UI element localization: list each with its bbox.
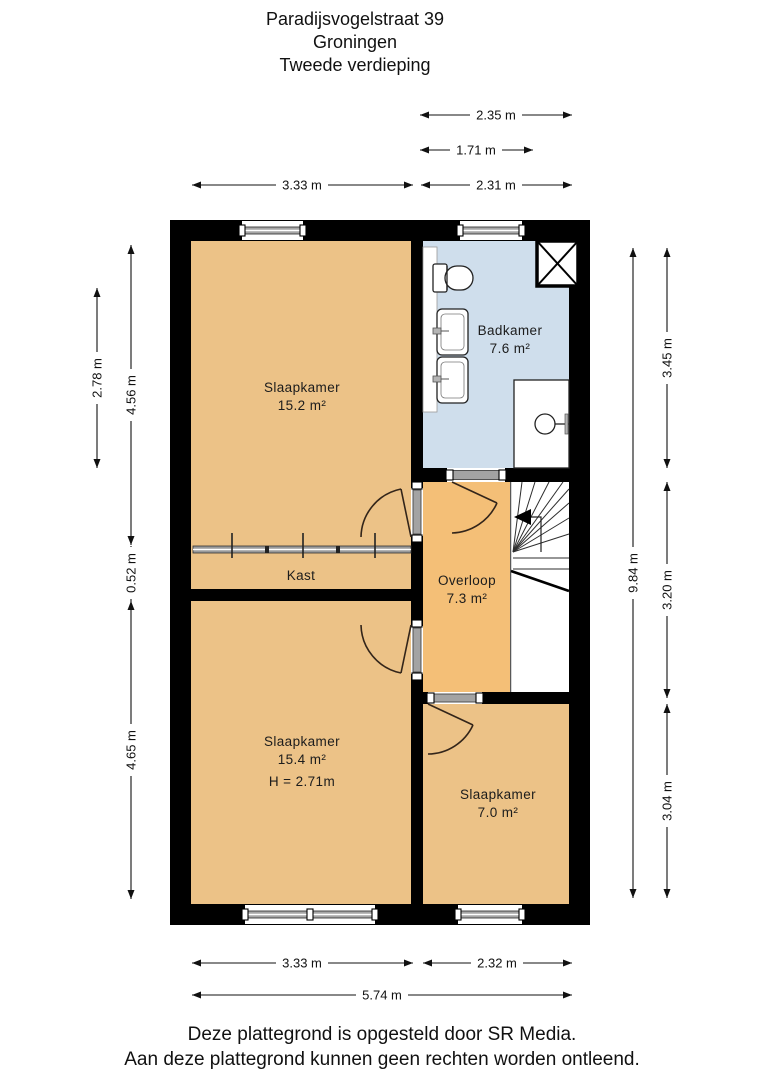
dim-right-345: 3.45 m xyxy=(659,248,675,468)
disclaimer: Deze plattegrond is opgesteld door SR Me… xyxy=(124,1022,640,1072)
label-bathroom-name: Badkamer xyxy=(478,323,543,338)
svg-text:3.20 m: 3.20 m xyxy=(660,570,675,610)
dim-right-984: 9.84 m xyxy=(625,248,641,898)
wall-bottom xyxy=(170,904,590,925)
floorplan-page: Paradijsvogelstraat 39 Groningen Tweede … xyxy=(0,0,764,1080)
wall-top xyxy=(170,220,590,241)
window-bottom-left xyxy=(242,905,378,924)
dim-bottom-232: 2.32 m xyxy=(423,955,572,971)
label-closet-name: Kast xyxy=(287,568,316,583)
floorplan-drawing: Slaapkamer 15.2 m² Badkamer 7.6 m² Kast … xyxy=(0,0,764,1080)
disclaimer-line-1: Deze plattegrond is opgesteld door SR Me… xyxy=(124,1022,640,1047)
toilet-icon xyxy=(433,264,473,292)
svg-text:3.04 m: 3.04 m xyxy=(660,781,675,821)
disclaimer-line-2: Aan deze plattegrond kunnen geen rechten… xyxy=(124,1047,640,1072)
label-bedroom-1-area: 15.2 m² xyxy=(278,398,327,413)
dim-left-465: 4.65 m xyxy=(123,601,139,899)
svg-text:2.35 m: 2.35 m xyxy=(476,108,516,123)
svg-text:0.52 m: 0.52 m xyxy=(124,553,139,593)
dim-left-278: 2.78 m xyxy=(89,288,105,468)
wall-left xyxy=(170,220,191,925)
dim-top-235: 2.35 m xyxy=(420,107,572,123)
room-bedroom-3 xyxy=(423,704,569,904)
label-bedroom-3-name: Slaapkamer xyxy=(460,787,536,802)
wall-center-vertical xyxy=(411,241,423,904)
wall-closet-south xyxy=(191,589,411,601)
dim-bottom-333: 3.33 m xyxy=(192,955,413,971)
dim-top-333: 3.33 m xyxy=(192,177,413,193)
svg-text:2.32 m: 2.32 m xyxy=(477,956,517,971)
dim-right-304: 3.04 m xyxy=(659,704,675,898)
svg-text:5.74 m: 5.74 m xyxy=(362,988,402,1003)
label-landing-area: 7.3 m² xyxy=(447,591,488,606)
svg-text:3.45 m: 3.45 m xyxy=(660,338,675,378)
window-bottom-right xyxy=(455,905,525,924)
label-bedroom-3-area: 7.0 m² xyxy=(478,805,519,820)
title-address: Paradijsvogelstraat 39 xyxy=(266,8,444,31)
sink-icon-2 xyxy=(433,357,468,403)
svg-text:1.71 m: 1.71 m xyxy=(456,143,496,158)
sink-icon-1 xyxy=(433,309,468,355)
window-top-right xyxy=(457,221,525,240)
dim-right-320: 3.20 m xyxy=(659,482,675,698)
label-bathroom-area: 7.6 m² xyxy=(490,341,531,356)
dim-left-052: 0.52 m xyxy=(123,546,139,601)
svg-text:9.84 m: 9.84 m xyxy=(626,553,641,593)
label-bedroom-2-name: Slaapkamer xyxy=(264,734,340,749)
svg-text:3.33 m: 3.33 m xyxy=(282,178,322,193)
svg-text:4.56 m: 4.56 m xyxy=(124,375,139,415)
dim-top-231: 2.31 m xyxy=(421,177,572,193)
label-bedroom-2-area: 15.4 m² xyxy=(278,752,327,767)
dim-bottom-574: 5.74 m xyxy=(192,987,572,1003)
wall-right xyxy=(569,220,590,925)
dim-left-456: 4.56 m xyxy=(123,245,139,545)
dim-top-171: 1.71 m xyxy=(420,142,533,158)
svg-text:2.31 m: 2.31 m xyxy=(476,178,516,193)
svg-text:3.33 m: 3.33 m xyxy=(282,956,322,971)
title-floor: Tweede verdieping xyxy=(266,54,444,77)
plan-title: Paradijsvogelstraat 39 Groningen Tweede … xyxy=(266,8,444,77)
title-city: Groningen xyxy=(266,31,444,54)
shower-icon xyxy=(514,380,569,468)
label-bedroom-2-height: H = 2.71m xyxy=(269,774,335,789)
window-top-left xyxy=(239,221,306,240)
shaft-icon xyxy=(537,241,578,286)
label-bedroom-1-name: Slaapkamer xyxy=(264,380,340,395)
label-landing-name: Overloop xyxy=(438,573,496,588)
svg-text:2.78 m: 2.78 m xyxy=(90,358,105,398)
svg-text:4.65 m: 4.65 m xyxy=(124,730,139,770)
